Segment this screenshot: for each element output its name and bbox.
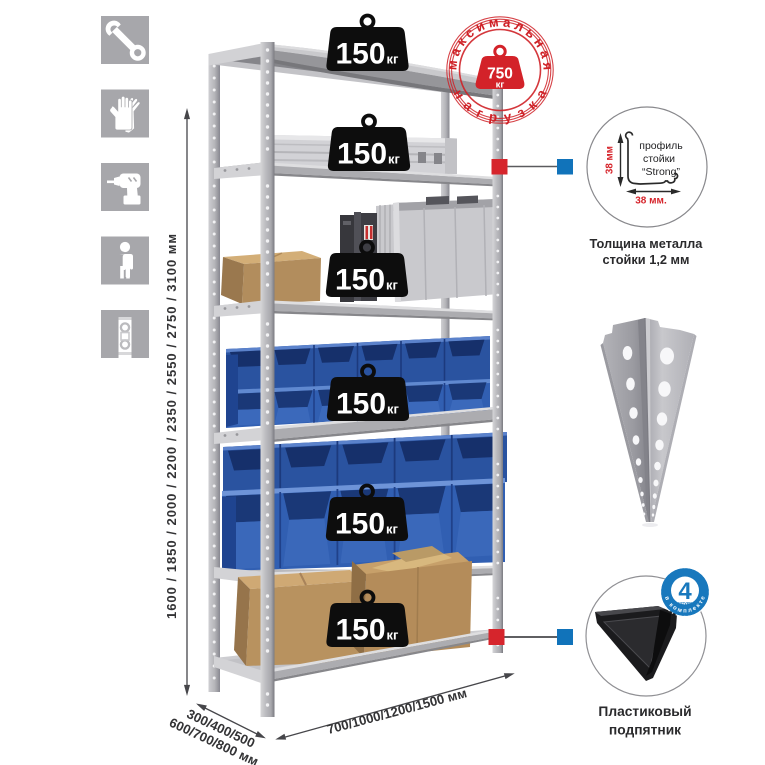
svg-text:700/1000/1200/1500 мм: 700/1000/1200/1500 мм <box>325 685 468 737</box>
svg-text:штуки: штуки <box>678 601 692 606</box>
svg-text:38 мм: 38 мм <box>605 146 616 174</box>
svg-text:Пластиковый: Пластиковый <box>598 704 691 719</box>
svg-text:стойки 1,2 мм: стойки 1,2 мм <box>602 252 689 267</box>
svg-text:1600 / 1850 / 2000 / 2200 / 23: 1600 / 1850 / 2000 / 2200 / 2350 / 2550 … <box>164 233 179 619</box>
svg-text:“Strong”: “Strong” <box>642 166 680 178</box>
svg-text:стойки: стойки <box>643 153 675 165</box>
svg-text:профиль: профиль <box>639 140 683 152</box>
svg-text:38 мм.: 38 мм. <box>635 196 667 207</box>
svg-text:кг: кг <box>496 80 505 91</box>
svg-text:подпятник: подпятник <box>609 723 681 738</box>
svg-text:Толщина металла: Толщина металла <box>590 236 704 251</box>
